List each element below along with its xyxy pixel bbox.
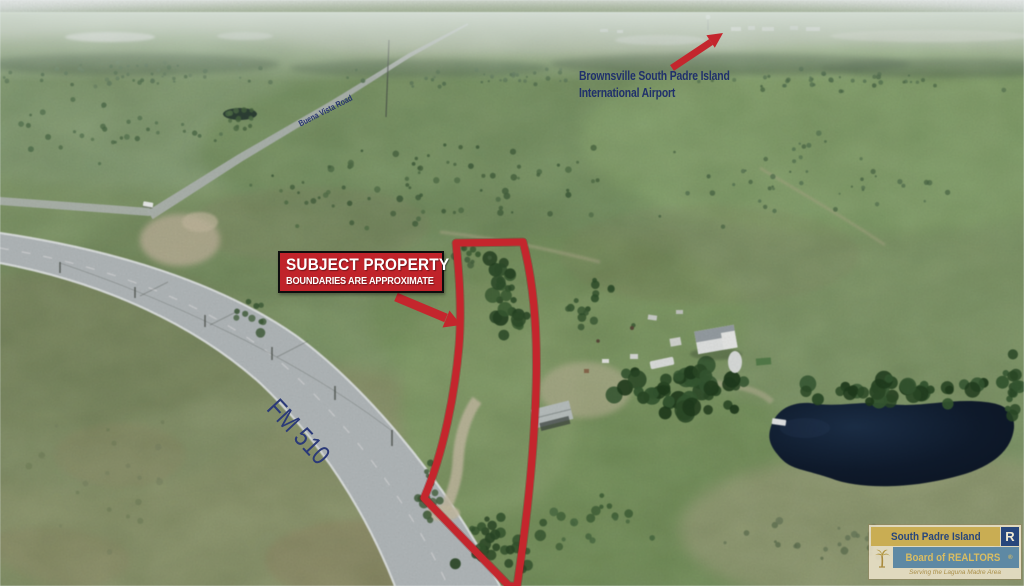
palm-tree-icon: [871, 547, 893, 568]
logo-bottom-band: Board of REALTORS®: [893, 547, 1019, 568]
property-boundary-shadow: [424, 242, 536, 586]
logo-top-band: South Padre Island: [871, 527, 1000, 546]
airport-label-line1: Brownsville South Padre Island: [579, 67, 730, 84]
airport-label-line2: International Airport: [579, 84, 730, 101]
property-boundary-outline: [424, 242, 536, 586]
subject-property-label: SUBJECT PROPERTY BOUNDARIES ARE APPROXIM…: [278, 251, 444, 293]
subject-property-subtitle: BOUNDARIES ARE APPROXIMATE: [286, 276, 424, 287]
logo-top-text: South Padre Island: [891, 531, 981, 543]
registered-mark: ®: [1008, 555, 1012, 561]
realtor-r-icon: R: [1001, 527, 1019, 546]
annotation-layer: [0, 0, 1024, 586]
logo-bottom-text: Board of REALTORS: [906, 552, 1001, 564]
logo-tagline: Serving the Laguna Madre Area: [871, 568, 1019, 577]
property-arrow: [396, 297, 461, 328]
aerial-photo: Brownsville South Padre Island Internati…: [0, 0, 1024, 586]
realtors-logo: South Padre Island R Board of REALTORS® …: [869, 525, 1021, 579]
airport-label: Brownsville South Padre Island Internati…: [579, 67, 730, 101]
airport-arrow: [672, 33, 723, 68]
subject-property-title: SUBJECT PROPERTY: [286, 256, 426, 275]
